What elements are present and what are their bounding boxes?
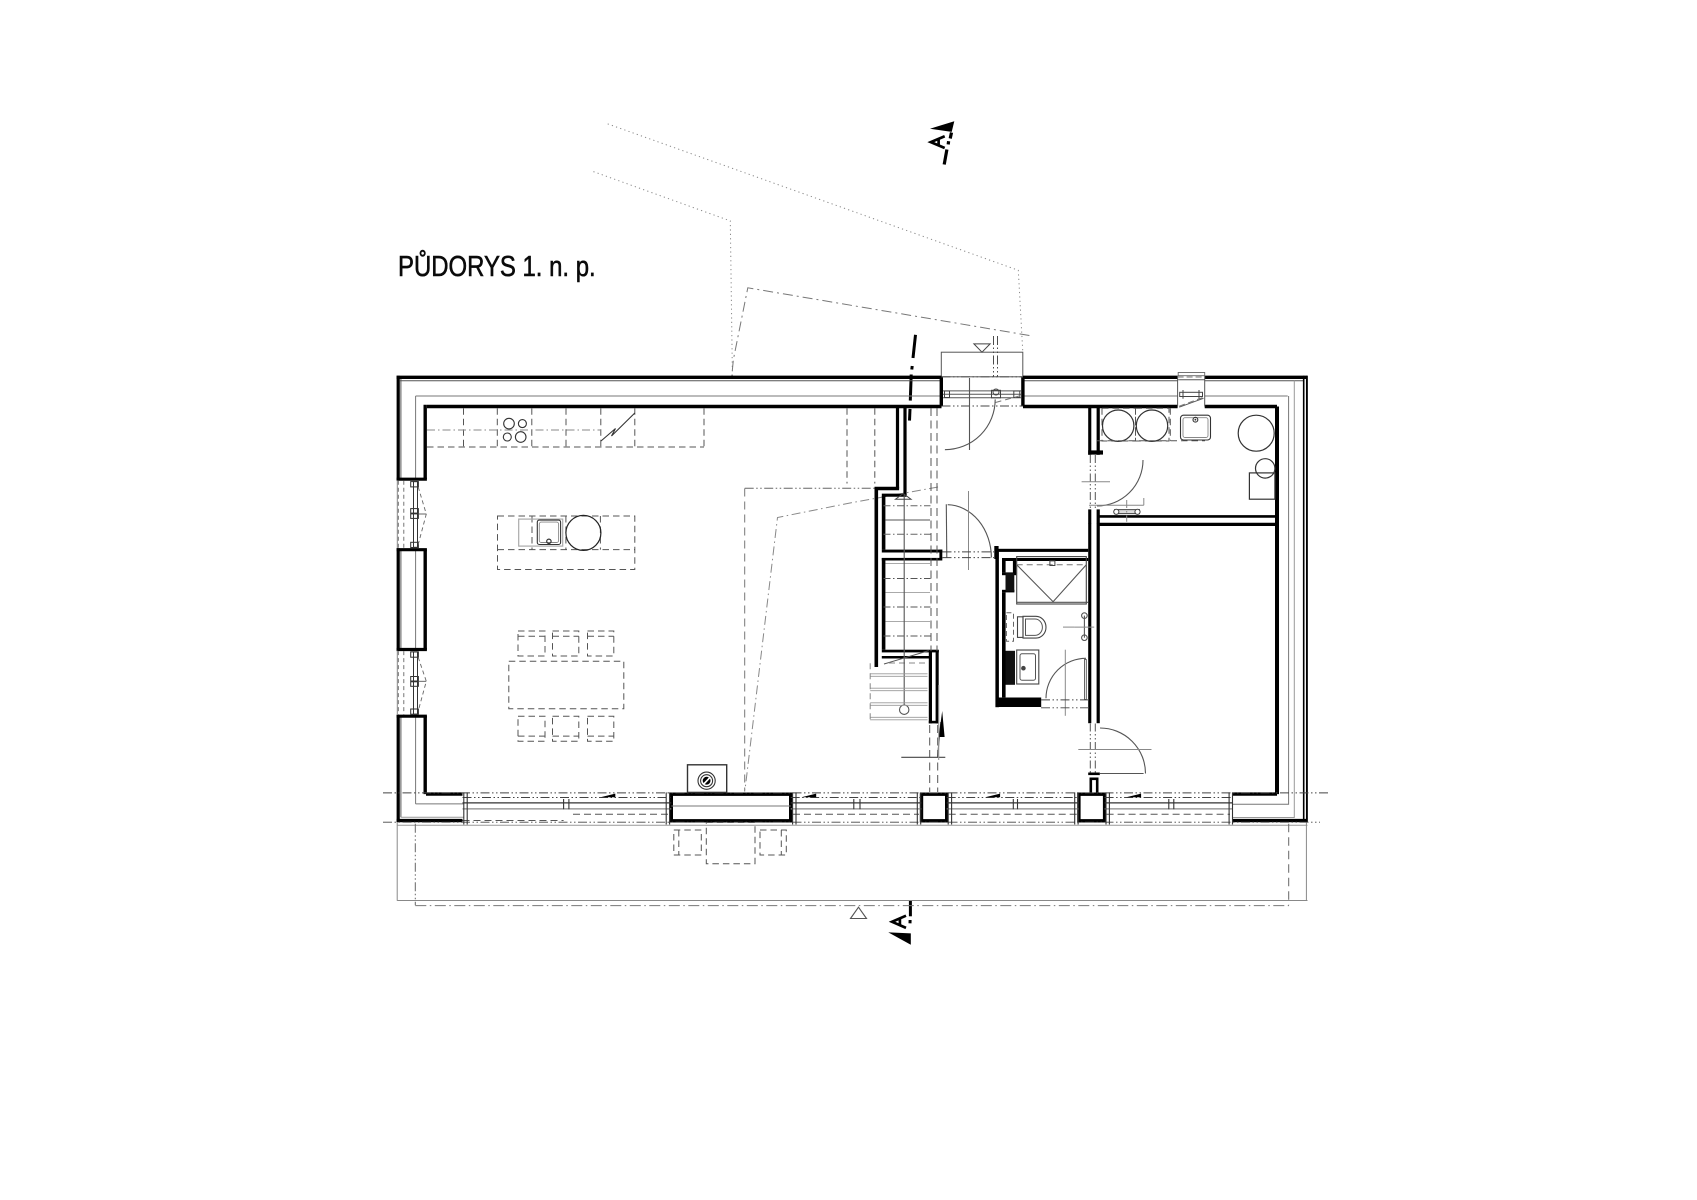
svg-text:PŮDORYS 1. n. p.: PŮDORYS 1. n. p. <box>398 249 596 283</box>
